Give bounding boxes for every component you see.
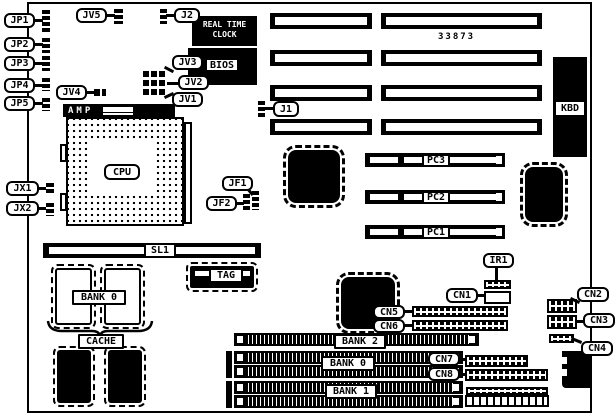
- jf2-text: JF2: [212, 198, 230, 209]
- ir1-label: IR1: [483, 253, 514, 268]
- sl1-text: SL1: [151, 245, 169, 256]
- jp3-label: JP3: [4, 56, 35, 71]
- cn1-connector: [484, 291, 511, 304]
- jp3-leader: [34, 62, 43, 65]
- bank1-text: BANK 1: [333, 386, 369, 397]
- jp2-jumper: [42, 38, 50, 53]
- din-connector: [562, 351, 592, 388]
- cache-label: CACHE: [78, 334, 124, 349]
- jp1-leader: [34, 19, 43, 22]
- jv1-text: JV1: [178, 94, 196, 105]
- tag-label: TAG: [209, 268, 243, 283]
- rtc-text-line2: CLOCK: [192, 30, 257, 40]
- jf1-label: JF1: [222, 176, 253, 191]
- cn6-leader: [404, 324, 413, 327]
- qfp-chip-right: [525, 167, 563, 222]
- jv4-leader: [86, 91, 95, 94]
- ir1-text: IR1: [489, 255, 507, 266]
- jx2-leader: [38, 207, 46, 210]
- dip-chip-1: [57, 350, 91, 403]
- jp1-label: JP1: [4, 13, 35, 28]
- jv4-text: JV4: [62, 87, 80, 98]
- cn1-leader: [477, 294, 485, 297]
- cn1-label: CN1: [446, 288, 478, 303]
- rtc-text-line1: REAL TIME: [192, 20, 257, 30]
- cn6-text: CN6: [380, 321, 398, 332]
- jp1-jumper: [42, 10, 50, 34]
- sl1-label: SL1: [144, 243, 176, 258]
- cn3-label: CN3: [583, 313, 615, 328]
- jv5-leader: [106, 14, 115, 17]
- tag-text: TAG: [217, 270, 235, 281]
- dip-chip-2: [108, 350, 142, 403]
- j1-text: J1: [280, 104, 292, 115]
- cpu-zif-bar: [184, 122, 192, 224]
- bios-label: BIOS: [205, 58, 239, 72]
- bank0-simm-text: BANK 0: [330, 358, 366, 369]
- jp4-label: JP4: [4, 78, 35, 93]
- isa-slot-4-short: [270, 119, 372, 135]
- jx1-leader: [38, 187, 46, 190]
- jv2-text: JV2: [184, 77, 202, 88]
- isa-slot-3-long: [381, 85, 542, 101]
- jv5-jumper: [114, 9, 123, 24]
- motherboard-diagram: JP1 JP2 JP3 JP4 JP5 JV5 J2 REAL TIME CLO…: [0, 0, 616, 418]
- jv2-label: JV2: [178, 75, 209, 90]
- jv3-label: JV3: [172, 55, 203, 70]
- jv4-label: JV4: [56, 85, 87, 100]
- jx1-label: JX1: [6, 181, 39, 196]
- jv3-jumper: [143, 71, 167, 77]
- jp2-label: JP2: [4, 37, 35, 52]
- amp-pad2: [103, 113, 133, 115]
- bank0-simm-label: BANK 0: [321, 356, 375, 371]
- cn5-label: CN5: [373, 305, 405, 319]
- jv1-label: JV1: [172, 92, 203, 107]
- pc2-text: PC2: [427, 192, 445, 203]
- bank2-text: BANK 2: [342, 336, 378, 347]
- cn5-text: CN5: [380, 307, 398, 318]
- jx2-text: JX2: [13, 203, 31, 214]
- power-connector-body: [465, 395, 549, 407]
- bank0-cache-label: BANK 0: [72, 290, 126, 305]
- isa-slot-2-long: [381, 50, 542, 66]
- jp1-text: JP1: [10, 15, 28, 26]
- jp4-leader: [34, 84, 43, 87]
- jx1-jumper: [46, 183, 54, 195]
- jf2-jumper: [243, 194, 250, 210]
- cn3-header: [547, 315, 577, 329]
- j1-label: J1: [273, 101, 299, 117]
- pc3-text: PC3: [427, 155, 445, 166]
- qfp-chip-left: [288, 150, 340, 203]
- amp-pad: [103, 107, 133, 112]
- isa-slot-4-long: [381, 119, 542, 135]
- jv5-text: JV5: [82, 10, 100, 21]
- simm-end-post-bank1: [226, 381, 232, 408]
- cn6-header: [412, 320, 508, 331]
- ir1-header: [484, 280, 511, 289]
- pc2-label: PC2: [422, 191, 450, 204]
- cn7-text: CN7: [435, 354, 453, 365]
- j2-label: J2: [174, 8, 200, 23]
- bios-text: BIOS: [210, 60, 234, 71]
- cn1-text: CN1: [453, 290, 471, 301]
- cpu-text: CPU: [113, 167, 131, 178]
- jf1-text: JF1: [228, 178, 246, 189]
- jp3-jumper: [42, 56, 50, 71]
- jf2-leader: [236, 202, 244, 205]
- part-number: 33873: [438, 32, 475, 42]
- jf2-label: JF2: [206, 196, 237, 211]
- jp3-text: JP3: [10, 58, 28, 69]
- cn8-header: [465, 369, 548, 381]
- ir1-leader: [495, 267, 498, 281]
- power-connector-pins: [466, 387, 548, 395]
- jv3-text: JV3: [178, 57, 196, 68]
- amp-text: AMP: [68, 106, 93, 116]
- bank2-label: BANK 2: [334, 334, 386, 349]
- cn2-label: CN2: [577, 287, 609, 302]
- jx1-text: JX1: [13, 183, 31, 194]
- isa-slot-3-short: [270, 85, 372, 101]
- jp5-text: JP5: [10, 98, 28, 109]
- jp2-leader: [34, 43, 43, 46]
- cpu-socket-tab-lower: [60, 193, 67, 211]
- kbd-text: KBD: [561, 103, 579, 114]
- jx2-label: JX2: [6, 201, 39, 216]
- cn6-label: CN6: [373, 319, 405, 333]
- bank1-label: BANK 1: [325, 384, 377, 399]
- cn5-header: [412, 306, 508, 317]
- cn8-text: CN8: [435, 369, 453, 380]
- pc3-label: PC3: [422, 154, 450, 167]
- cn2-text: CN2: [584, 289, 602, 300]
- jp4-text: JP4: [10, 80, 28, 91]
- bank0-cache-text: BANK 0: [81, 292, 117, 303]
- jp5-leader: [34, 102, 43, 105]
- cn7-label: CN7: [428, 352, 460, 366]
- cn4-label: CN4: [581, 341, 613, 356]
- cpu-socket-tab-upper: [60, 144, 67, 162]
- pc1-label: PC1: [422, 226, 450, 239]
- isa-slot-1-long: [381, 13, 542, 29]
- cn4-text: CN4: [588, 343, 606, 354]
- jv1-jumper: [143, 89, 167, 95]
- isa-slot-1-short: [270, 13, 372, 29]
- isa-slot-2-short: [270, 50, 372, 66]
- jv5-label: JV5: [76, 8, 107, 23]
- jv2-jumper: [143, 80, 167, 86]
- cpu-label: CPU: [104, 164, 140, 180]
- cn7-header: [465, 355, 528, 367]
- jp5-label: JP5: [4, 96, 35, 111]
- jp2-text: JP2: [10, 39, 28, 50]
- rtc-chip: REAL TIME CLOCK: [192, 16, 257, 46]
- cn3-text: CN3: [590, 315, 608, 326]
- cn8-label: CN8: [428, 367, 460, 381]
- jp5-jumper: [42, 98, 50, 111]
- jp4-jumper: [42, 78, 50, 91]
- pc1-text: PC1: [427, 227, 445, 238]
- jv4-jumper: [94, 89, 106, 96]
- jx2-jumper: [46, 203, 54, 216]
- cn5-leader: [404, 310, 413, 313]
- simm-end-post-bank0: [226, 351, 232, 378]
- cache-text: CACHE: [86, 336, 116, 347]
- kbd-label: KBD: [556, 102, 584, 115]
- j2-text: J2: [181, 10, 193, 21]
- amp-regulator: AMP: [63, 104, 175, 117]
